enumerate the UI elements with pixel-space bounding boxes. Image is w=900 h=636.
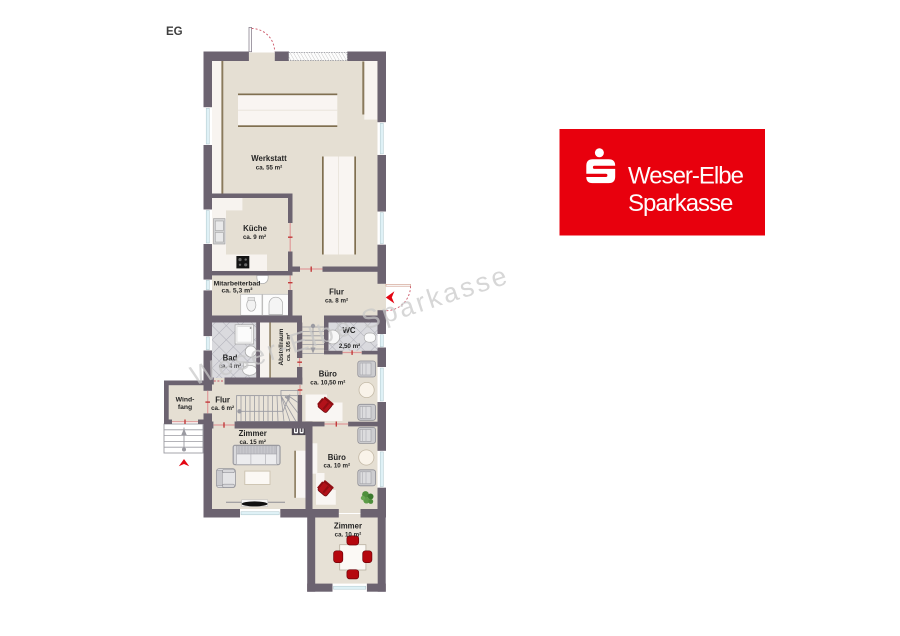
svg-text:EG: EG bbox=[166, 26, 183, 38]
svg-text:ca. 10 m²: ca. 10 m² bbox=[335, 532, 361, 539]
svg-text:ca. 5,3 m²: ca. 5,3 m² bbox=[222, 287, 254, 294]
svg-text:Büro: Büro bbox=[328, 453, 346, 462]
svg-text:ca. 15 m²: ca. 15 m² bbox=[239, 439, 265, 446]
svg-text:ca. 10,50 m²: ca. 10,50 m² bbox=[310, 380, 345, 387]
svg-text:ca. 55 m²: ca. 55 m² bbox=[256, 165, 282, 172]
svg-text:Flur: Flur bbox=[329, 288, 344, 297]
svg-text:Werkstatt: Werkstatt bbox=[251, 154, 287, 163]
svg-text:fang: fang bbox=[178, 404, 192, 411]
svg-text:Flur: Flur bbox=[215, 396, 230, 405]
svg-text:2,50 m²: 2,50 m² bbox=[339, 343, 360, 350]
svg-text:ca. 10 m²: ca. 10 m² bbox=[324, 463, 350, 470]
svg-text:Büro: Büro bbox=[319, 370, 337, 379]
svg-text:Weser-Elbe: Weser-Elbe bbox=[628, 163, 744, 190]
svg-text:Sparkasse: Sparkasse bbox=[628, 190, 733, 217]
svg-text:Zimmer: Zimmer bbox=[334, 522, 362, 531]
svg-text:Küche: Küche bbox=[243, 224, 267, 233]
svg-text:ca. 8 m²: ca. 8 m² bbox=[325, 297, 348, 304]
svg-text:Zimmer: Zimmer bbox=[239, 429, 267, 438]
svg-text:Wind-: Wind- bbox=[176, 397, 195, 404]
svg-text:ca. 6 m²: ca. 6 m² bbox=[211, 405, 234, 412]
svg-text:ca. 9 m²: ca. 9 m² bbox=[243, 234, 266, 241]
